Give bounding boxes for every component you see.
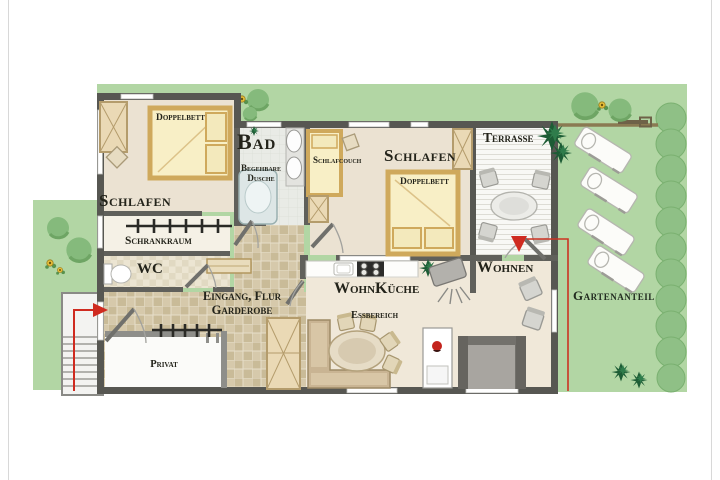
garden-label: Gartenanteil [573, 289, 655, 303]
bathroom-label: Bad [237, 130, 276, 154]
bedroom2-label: Schlafen [384, 147, 456, 166]
sideboard [207, 259, 251, 273]
floorplan-drawing [0, 0, 720, 480]
shower-label-line1: Begehbare [241, 163, 281, 173]
bedroom1-bed-label: Doppelbett [156, 113, 205, 123]
living-label: Wohnen [477, 259, 533, 277]
bedroom2-bed-label: Doppelbett [400, 177, 449, 187]
private-room-label: Privat [105, 359, 223, 371]
sink [287, 130, 302, 152]
hallway-label: Eingang, Flur Garderobe [186, 290, 298, 318]
bedroom1-label: Schlafen [99, 192, 171, 211]
wc-fixtures [104, 264, 131, 284]
shower-label: Begehbare Dusche [226, 164, 296, 184]
fridge [423, 328, 452, 388]
hallway-label-line2: Garderobe [212, 303, 273, 317]
terrace-label: Terrasse [483, 131, 534, 146]
floorplan-image: Schlafen Doppelbett Schrankraum WC Einga… [0, 0, 720, 480]
wardrobe [100, 102, 127, 152]
sleep-couch-label: Schlafcouch [313, 156, 361, 166]
small-wardrobe [309, 196, 328, 222]
kitchen-counter [306, 261, 418, 277]
hallway-label-line1: Eingang, Flur [203, 289, 281, 303]
wardrobe-room-label: Schrankraum [125, 235, 192, 248]
shower-label-line2: Dusche [247, 173, 274, 183]
stove [357, 262, 384, 277]
dining-label: Essbereich [351, 310, 398, 322]
hall-wardrobe [267, 318, 300, 389]
kitchen-label: WohnKüche [334, 280, 419, 298]
wc-label: WC [137, 261, 163, 278]
sofa [458, 336, 526, 389]
hedge-bushes [656, 103, 686, 392]
